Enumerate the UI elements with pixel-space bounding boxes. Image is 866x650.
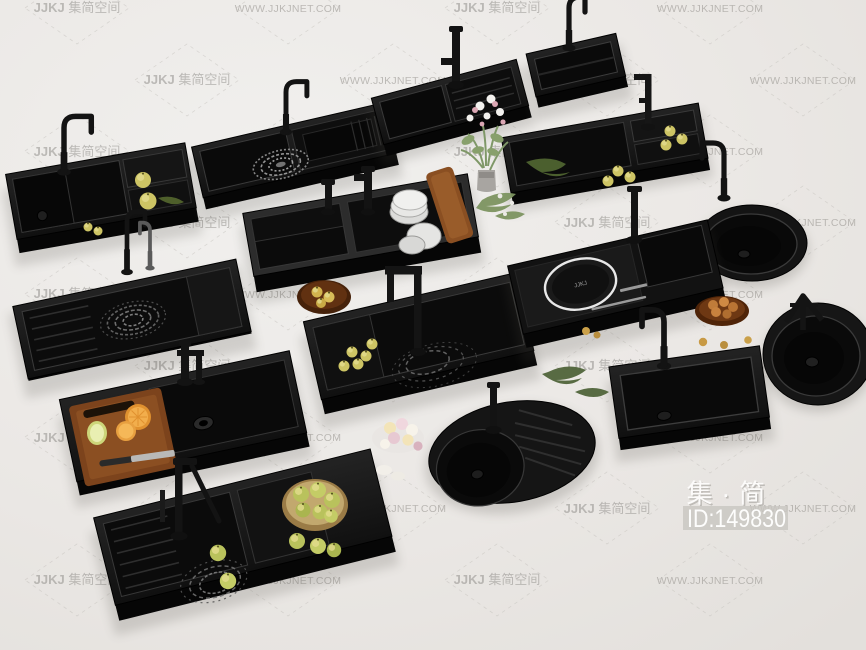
svg-text:集·简: 集·简 (687, 479, 775, 509)
svg-text:WWW.JJKJNET.COM: WWW.JJKJNET.COM (657, 3, 764, 15)
svg-text:JJKJ 集简空间: JJKJ 集简空间 (34, 0, 121, 15)
svg-text:WWW.JJKJNET.COM: WWW.JJKJNET.COM (750, 75, 857, 87)
svg-text:JJKJ 集简空间: JJKJ 集简空间 (454, 0, 541, 15)
svg-text:JJKJ 集简空间: JJKJ 集简空间 (454, 572, 541, 587)
svg-text:WWW.JJKJNET.COM: WWW.JJKJNET.COM (657, 575, 764, 587)
svg-text:JJKJ 集简空间: JJKJ 集简空间 (564, 501, 651, 516)
svg-text:JJKJ 集简空间: JJKJ 集简空间 (144, 72, 231, 87)
svg-text:ID:149830: ID:149830 (687, 505, 786, 533)
svg-text:WWW.JJKJNET.COM: WWW.JJKJNET.COM (235, 3, 342, 15)
